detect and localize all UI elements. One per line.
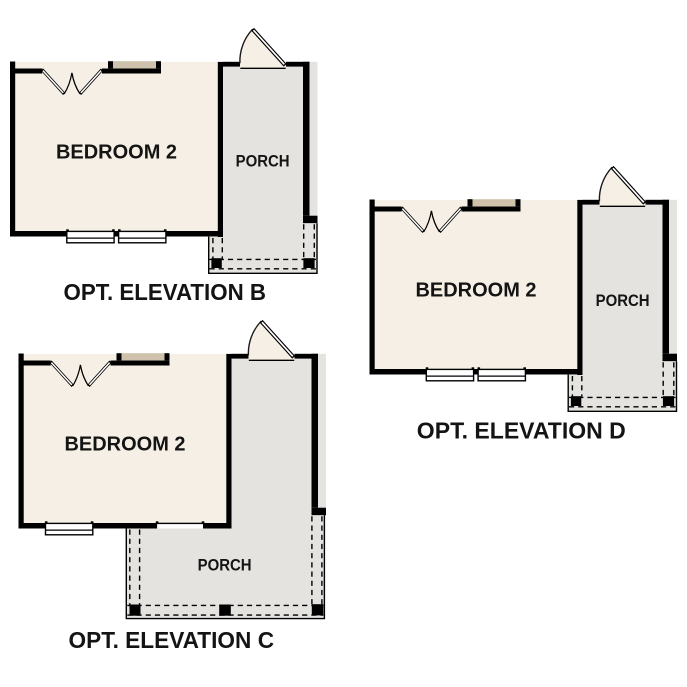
svg-text:BEDROOM 2: BEDROOM 2 [65,433,186,455]
svg-text:BEDROOM 2: BEDROOM 2 [416,279,537,301]
svg-text:PORCH: PORCH [236,152,290,170]
svg-text:OPT. ELEVATION B: OPT. ELEVATION B [64,279,267,305]
svg-text:OPT. ELEVATION D: OPT. ELEVATION D [417,417,626,443]
svg-text:BEDROOM 2: BEDROOM 2 [56,141,177,163]
svg-text:PORCH: PORCH [596,292,650,310]
svg-text:OPT. ELEVATION C: OPT. ELEVATION C [69,627,275,653]
svg-text:PORCH: PORCH [198,556,252,574]
